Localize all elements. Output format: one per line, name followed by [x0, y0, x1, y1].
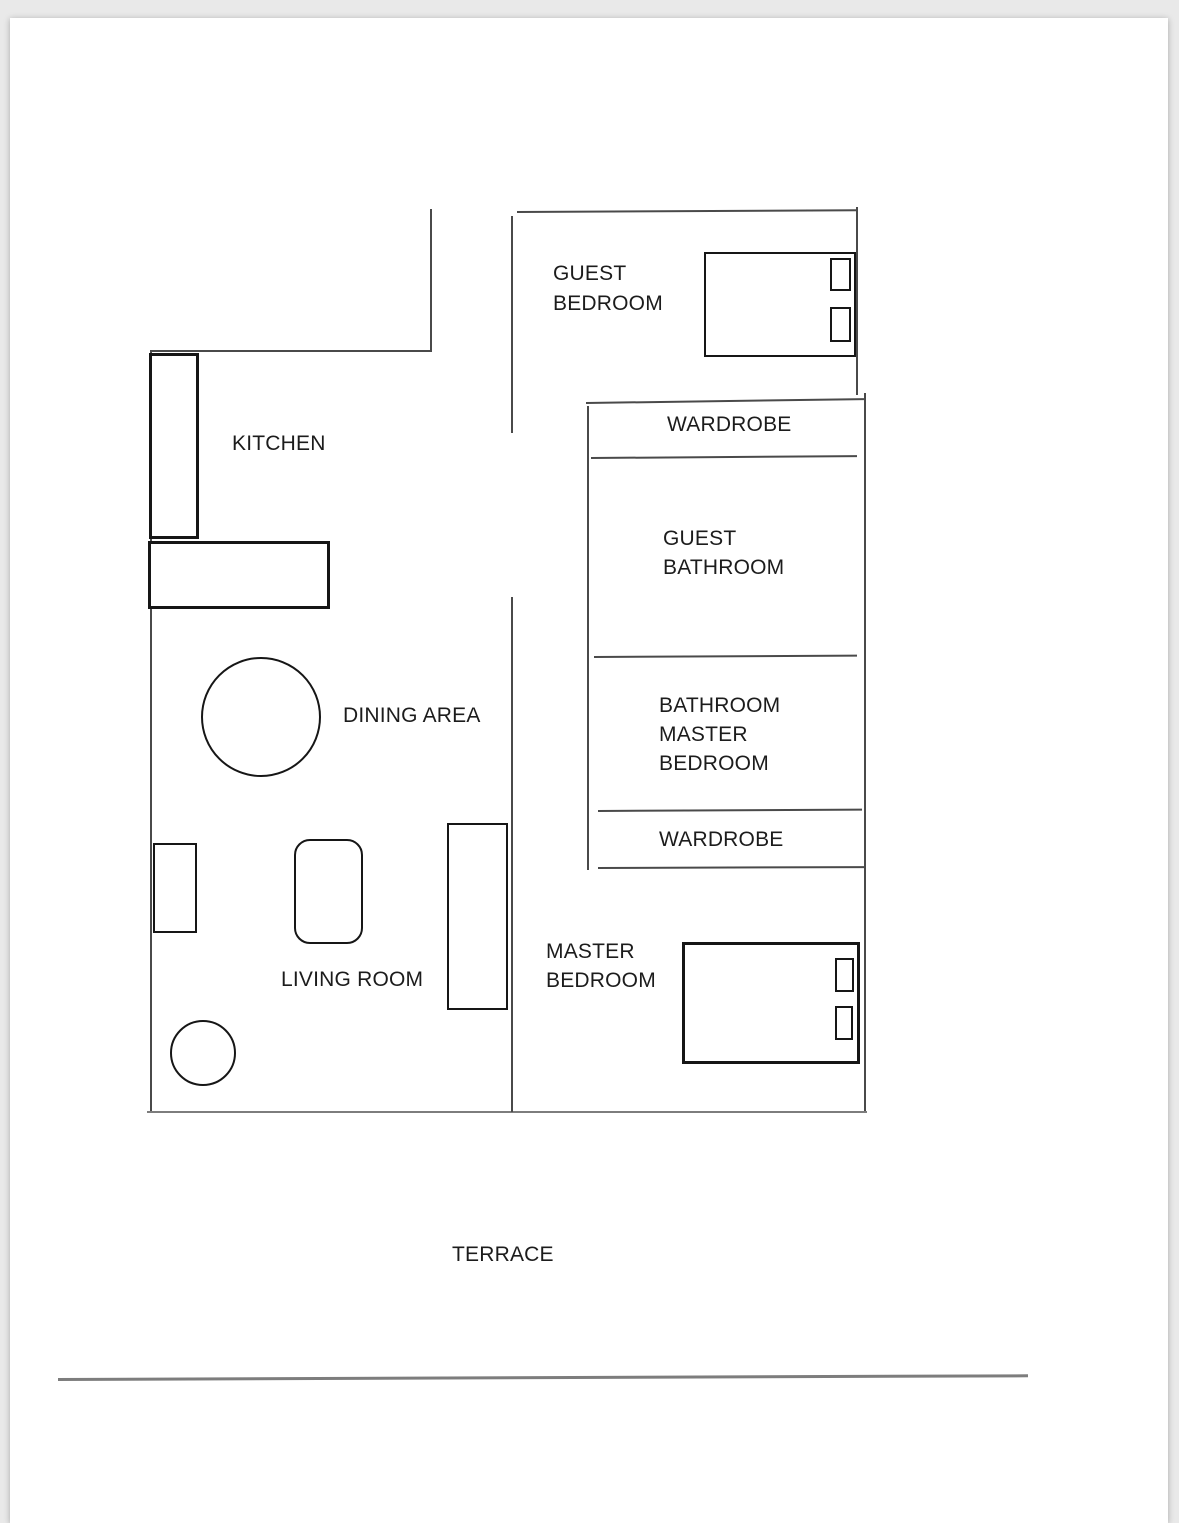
line-masterbath-bottom [598, 809, 862, 812]
wall-guest-bedroom-right [856, 207, 858, 395]
label-kitchen: KITCHEN [232, 429, 326, 459]
wall-kitchen-top [150, 350, 431, 352]
wall-guest-bedroom-top [517, 209, 857, 213]
guest-bed-pillow-2 [830, 307, 851, 342]
line-guestbath-bottom [594, 655, 857, 658]
label-guest-bathroom: GUEST BATHROOM [663, 524, 784, 582]
guest-bed-pillow-1 [830, 258, 851, 291]
armchair [170, 1020, 236, 1086]
label-master-bathroom: BATHROOM MASTER BEDROOM [659, 691, 780, 778]
master-bed [682, 942, 860, 1064]
side-table [153, 843, 197, 933]
master-bed-pillow-2 [835, 1006, 853, 1040]
dining-table [201, 657, 321, 777]
wall-bottom [147, 1111, 867, 1113]
kitchen-counter-horizontal [148, 541, 330, 609]
label-wardrobe-bottom: WARDROBE [659, 825, 784, 855]
terrace-boundary-line [58, 1374, 1028, 1381]
line-wardrobe-bottom [598, 866, 865, 869]
wall-wardrobe-column-left [587, 406, 589, 870]
wall-living-master-divider [511, 597, 513, 1112]
line-wardrobe-guestbath-divider [591, 455, 857, 459]
kitchen-counter-vertical [149, 353, 199, 539]
coffee-table [294, 839, 363, 944]
label-terrace: TERRACE [452, 1240, 554, 1270]
master-bed-pillow-1 [835, 958, 854, 992]
sofa [447, 823, 508, 1010]
floor-plan: GUEST BEDROOM KITCHEN WARDROBE GUEST BAT… [0, 0, 1179, 1523]
label-living-room: LIVING ROOM [281, 965, 423, 995]
label-master-bedroom: MASTER BEDROOM [546, 937, 656, 995]
line-wardrobe-top [586, 398, 864, 404]
wall-outer-right [864, 393, 866, 1112]
label-wardrobe-top: WARDROBE [667, 410, 792, 440]
wall-guest-bedroom-left [511, 216, 513, 433]
label-guest-bedroom: GUEST BEDROOM [553, 259, 663, 319]
wall-entry-return [430, 209, 432, 352]
label-dining-area: DINING AREA [343, 701, 481, 731]
